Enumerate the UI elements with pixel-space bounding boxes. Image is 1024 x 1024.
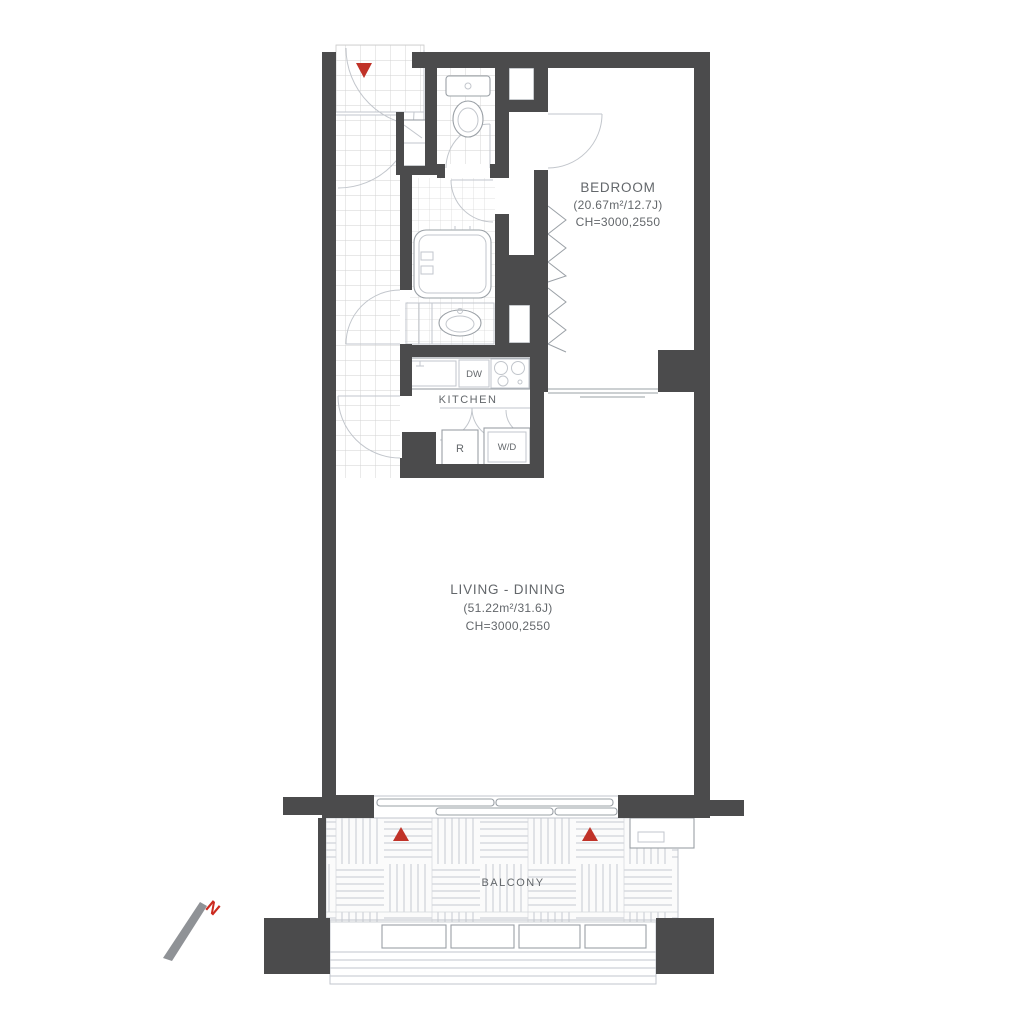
wall-top bbox=[412, 52, 710, 68]
balcony-railing bbox=[330, 920, 656, 952]
bedroom-door-arc bbox=[548, 114, 602, 168]
wall-entry-cabinet-r bbox=[427, 112, 437, 175]
wall-closet-bottom bbox=[509, 100, 534, 112]
closet-bifold-doors bbox=[548, 206, 566, 352]
north-label: N bbox=[202, 897, 224, 919]
wall-stub-right bbox=[694, 800, 744, 816]
wall-wc-door-r bbox=[490, 164, 495, 178]
wall-kitchen-top bbox=[400, 345, 544, 357]
wall-bottom-left bbox=[322, 795, 374, 818]
pillar-bedroom bbox=[658, 350, 710, 392]
svg-text:CH=3000,2550: CH=3000,2550 bbox=[466, 619, 551, 633]
bedroom-label: BEDROOM (20.67m²/12.7J) CH=3000,2550 bbox=[573, 180, 662, 229]
wall-bath-right bbox=[495, 214, 509, 255]
lower-closet-box bbox=[509, 305, 530, 343]
wall-left bbox=[322, 52, 336, 798]
svg-text:BEDROOM: BEDROOM bbox=[580, 180, 655, 195]
wall-kitchen-block bbox=[402, 432, 436, 466]
sliding-windows bbox=[374, 796, 618, 818]
wall-entry-cabinet-b bbox=[396, 166, 437, 175]
floor-plan-page: N BEDROOM (20.67m²/12.7J) CH=3000,2550 L… bbox=[0, 0, 1024, 1024]
washer-dryer-label: W/D bbox=[498, 442, 517, 453]
hallway-tiled-floor bbox=[336, 115, 400, 478]
entry-tiled-floor bbox=[336, 45, 424, 112]
wall-right bbox=[694, 52, 710, 800]
upper-closet-box bbox=[509, 68, 534, 100]
refrigerator-label: R bbox=[456, 443, 464, 455]
svg-text:(51.22m²/31.6J): (51.22m²/31.6J) bbox=[463, 601, 552, 615]
svg-text:LIVING - DINING: LIVING - DINING bbox=[450, 582, 566, 597]
kitchen-label: KITCHEN bbox=[439, 394, 498, 406]
svg-text:CH=3000,2550: CH=3000,2550 bbox=[576, 215, 661, 229]
living-dining-label: LIVING - DINING (51.22m²/31.6J) CH=3000,… bbox=[450, 582, 566, 633]
wall-hall-1 bbox=[400, 175, 412, 290]
north-arrow: N bbox=[163, 897, 224, 961]
wall-bedroom-top bbox=[534, 52, 548, 112]
wall-wc-door-l bbox=[437, 164, 445, 178]
sliding-partition bbox=[548, 389, 658, 397]
svg-text:(20.67m²/12.7J): (20.67m²/12.7J) bbox=[573, 198, 662, 212]
balcony-label: BALCONY bbox=[481, 877, 544, 889]
wall-entry-cabinet-l bbox=[396, 112, 404, 175]
floor-plan-canvas: N BEDROOM (20.67m²/12.7J) CH=3000,2550 L… bbox=[0, 0, 1024, 1024]
dishwasher-label: DW bbox=[466, 369, 482, 380]
balcony-deck-floor bbox=[326, 818, 678, 922]
balcony-left-partition bbox=[318, 818, 326, 930]
wall-stub-left bbox=[283, 797, 322, 815]
bathtub bbox=[414, 226, 491, 298]
block-bottom-left bbox=[264, 918, 330, 974]
wall-wc-right bbox=[495, 52, 509, 178]
balcony-steps bbox=[330, 952, 656, 984]
block-bottom-right bbox=[656, 918, 714, 974]
wall-kitchen-right bbox=[530, 345, 544, 478]
wall-kitchen-bottom bbox=[400, 464, 544, 478]
